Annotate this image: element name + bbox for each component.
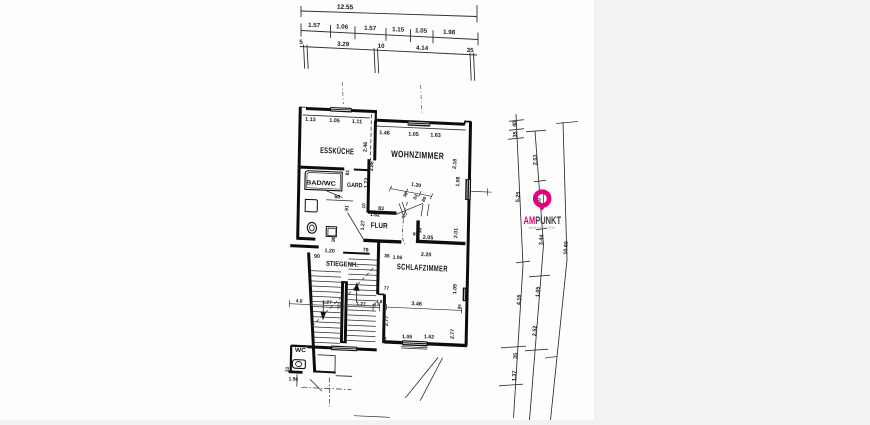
svg-text:GARD: GARD <box>347 182 363 190</box>
svg-text:85: 85 <box>413 231 419 236</box>
svg-text:2.52: 2.52 <box>532 326 539 337</box>
svg-text:1.57: 1.57 <box>364 25 377 33</box>
svg-text:3.29: 3.29 <box>337 41 350 49</box>
svg-text:90: 90 <box>331 236 337 242</box>
svg-text:1.57: 1.57 <box>308 22 321 30</box>
svg-text:91: 91 <box>344 205 350 211</box>
svg-text:1.27: 1.27 <box>322 299 332 305</box>
svg-text:10: 10 <box>361 203 366 209</box>
svg-text:1.05: 1.05 <box>415 27 428 35</box>
svg-text:1.98: 1.98 <box>443 29 456 37</box>
svg-text:1.06: 1.06 <box>393 255 403 261</box>
svg-text:90: 90 <box>417 227 423 233</box>
svg-text:2.53: 2.53 <box>533 155 540 166</box>
svg-text:78: 78 <box>363 247 369 253</box>
svg-text:2.77: 2.77 <box>450 329 457 340</box>
svg-text:ESSKÜCHE: ESSKÜCHE <box>320 145 354 157</box>
svg-text:4.14: 4.14 <box>416 45 429 53</box>
svg-text:IMMOBILIEN: IMMOBILIEN <box>529 225 556 230</box>
svg-text:1.06: 1.06 <box>336 23 349 31</box>
svg-text:80: 80 <box>382 336 388 342</box>
svg-text:2.05: 2.05 <box>423 235 434 241</box>
svg-text:1.27: 1.27 <box>360 220 367 231</box>
svg-text:4.8: 4.8 <box>376 299 383 304</box>
svg-text:BAD/WC: BAD/WC <box>306 179 337 187</box>
svg-text:2.20: 2.20 <box>421 252 432 258</box>
svg-text:5.25: 5.25 <box>515 192 522 203</box>
svg-text:33: 33 <box>285 366 291 372</box>
svg-text:1.13: 1.13 <box>305 117 316 123</box>
svg-text:3.46: 3.46 <box>411 301 422 307</box>
svg-text:91: 91 <box>345 169 351 175</box>
svg-text:1.73: 1.73 <box>363 178 370 189</box>
svg-text:1.05: 1.05 <box>408 131 419 137</box>
svg-text:1.06: 1.06 <box>455 176 462 187</box>
svg-text:35: 35 <box>513 353 519 359</box>
svg-text:3.86: 3.86 <box>369 161 376 172</box>
svg-text:1.37: 1.37 <box>512 371 519 382</box>
svg-text:FLUR: FLUR <box>371 221 389 231</box>
svg-text:35: 35 <box>512 131 518 137</box>
svg-text:1.62: 1.62 <box>424 334 434 340</box>
svg-text:1.05: 1.05 <box>329 118 340 124</box>
svg-text:1.05: 1.05 <box>535 287 542 298</box>
svg-text:1.20: 1.20 <box>324 248 334 254</box>
svg-text:1.27: 1.27 <box>356 301 366 307</box>
svg-text:2.46: 2.46 <box>363 142 370 153</box>
svg-text:2.77: 2.77 <box>384 316 391 327</box>
svg-text:60: 60 <box>334 194 340 200</box>
svg-text:4.8: 4.8 <box>296 298 303 304</box>
svg-text:STIEGENH.: STIEGENH. <box>326 261 358 269</box>
svg-text:36: 36 <box>384 253 390 259</box>
svg-text:1.11: 1.11 <box>352 119 362 125</box>
svg-text:WC: WC <box>295 348 307 355</box>
svg-text:1.05: 1.05 <box>452 284 459 295</box>
svg-text:40: 40 <box>512 121 518 127</box>
svg-text:2.01: 2.01 <box>453 228 460 239</box>
svg-text:4.16: 4.16 <box>516 295 523 306</box>
svg-text:77: 77 <box>384 286 390 292</box>
svg-text:10.60: 10.60 <box>563 241 570 255</box>
svg-text:1.15: 1.15 <box>392 26 405 34</box>
svg-text:83: 83 <box>378 206 384 212</box>
svg-text:1.05: 1.05 <box>402 334 412 340</box>
svg-text:1.46: 1.46 <box>379 130 390 136</box>
svg-text:90: 90 <box>314 254 320 260</box>
svg-text:3.44: 3.44 <box>539 235 546 246</box>
svg-text:1.62: 1.62 <box>370 212 380 218</box>
svg-text:2.18: 2.18 <box>452 159 459 170</box>
svg-text:1.63: 1.63 <box>430 132 441 138</box>
svg-text:10: 10 <box>377 43 385 50</box>
svg-text:12.55: 12.55 <box>337 4 354 12</box>
